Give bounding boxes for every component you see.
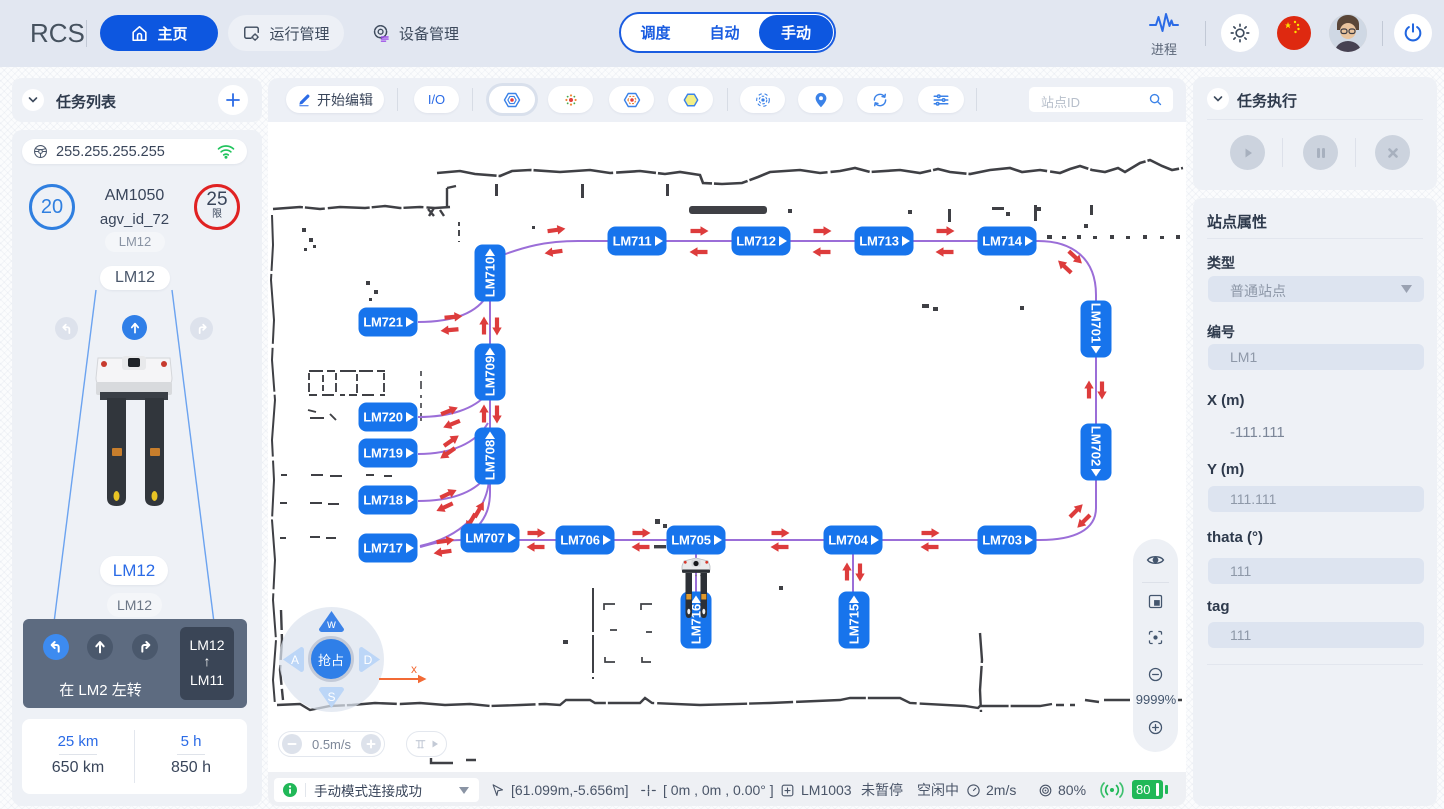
- svg-text:LM718: LM718: [363, 493, 402, 508]
- svg-text:LM721: LM721: [363, 315, 402, 330]
- svg-text:LM715: LM715: [847, 604, 862, 644]
- svg-text:LM713: LM713: [859, 234, 898, 249]
- svg-text:LM708: LM708: [483, 440, 498, 480]
- svg-text:LM711: LM711: [613, 234, 652, 249]
- svg-text:LM702: LM702: [1089, 426, 1104, 466]
- svg-text:x: x: [411, 662, 417, 676]
- svg-text:LM704: LM704: [828, 533, 868, 548]
- svg-text:LM719: LM719: [363, 446, 402, 461]
- svg-text:LM701: LM701: [1089, 303, 1104, 343]
- svg-text:LM720: LM720: [363, 410, 402, 425]
- svg-text:LM710: LM710: [483, 257, 498, 297]
- svg-text:LM707: LM707: [465, 531, 504, 546]
- svg-text:LM705: LM705: [671, 533, 710, 548]
- svg-text:S: S: [327, 690, 335, 704]
- svg-text:LM717: LM717: [363, 541, 402, 556]
- svg-text:LM709: LM709: [483, 356, 498, 396]
- svg-text:LM714: LM714: [982, 234, 1022, 249]
- svg-text:LM712: LM712: [736, 234, 775, 249]
- svg-text:w: w: [326, 617, 336, 631]
- svg-text:A: A: [291, 653, 299, 667]
- svg-text:LM706: LM706: [560, 533, 599, 548]
- svg-text:D: D: [364, 653, 373, 667]
- svg-text:LM703: LM703: [982, 533, 1021, 548]
